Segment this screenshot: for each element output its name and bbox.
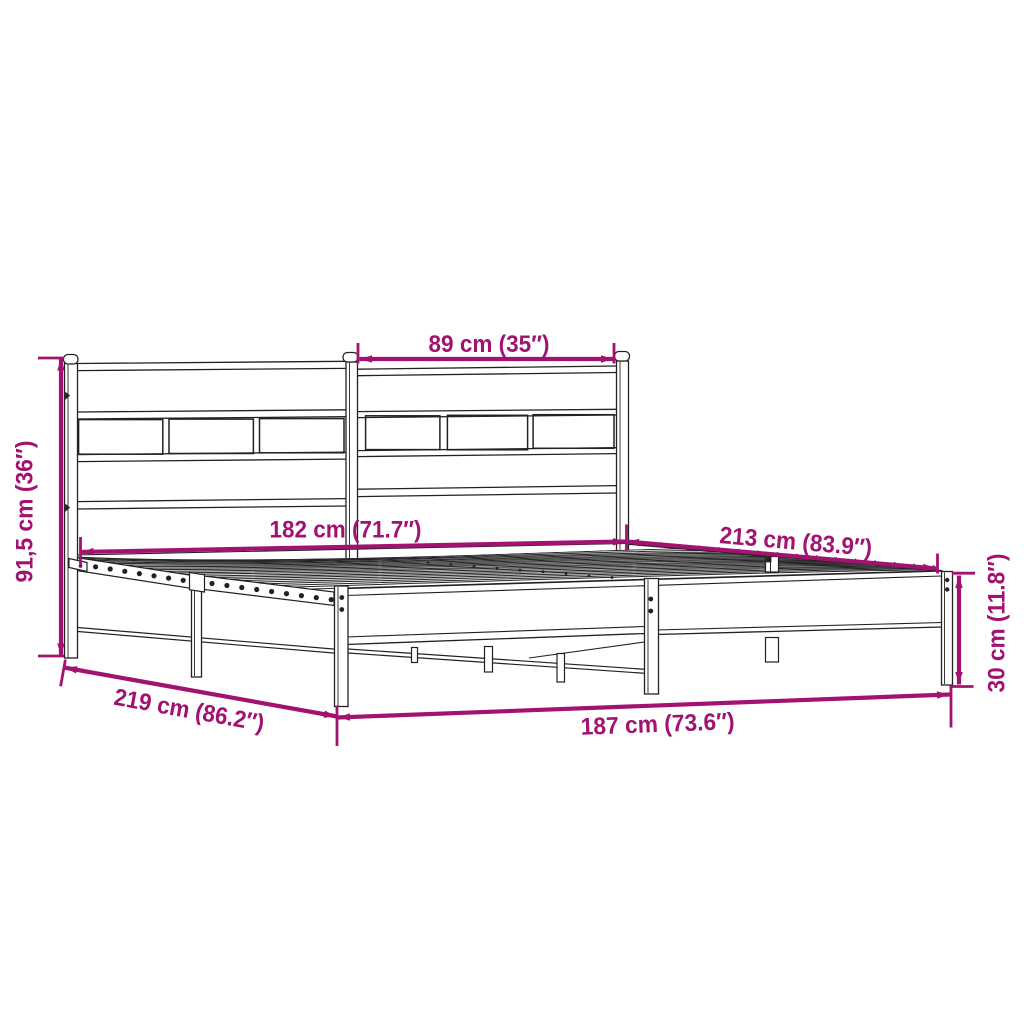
svg-text:182 cm (71.7″): 182 cm (71.7″) [270,517,422,544]
svg-text:187 cm (73.6″): 187 cm (73.6″) [580,708,735,741]
svg-text:91,5 cm (36″): 91,5 cm (36″) [12,441,39,583]
svg-text:30 cm (11.8″): 30 cm (11.8″) [984,554,1011,693]
svg-text:89 cm (35″): 89 cm (35″) [429,331,550,358]
